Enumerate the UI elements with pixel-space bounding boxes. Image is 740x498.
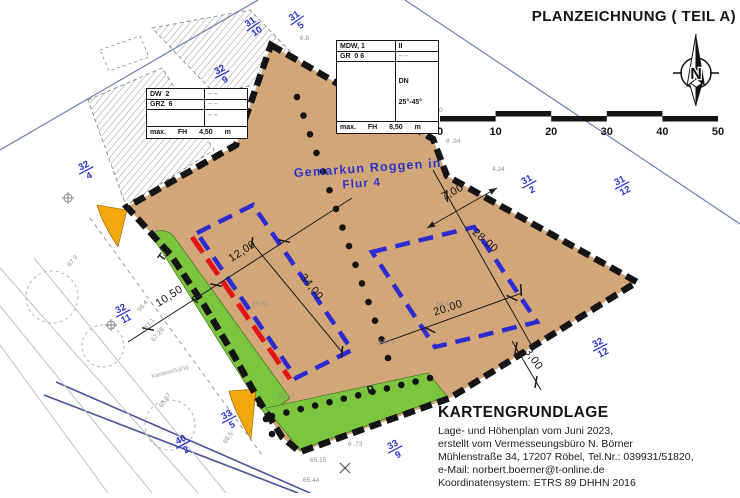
dimension-tick	[535, 376, 537, 388]
page-title: PLANZEICHNUNG ( TEIL A)	[500, 8, 736, 25]
cross-mark-icon	[340, 463, 350, 473]
spec-footer: max. FH 8,50 m	[337, 122, 438, 133]
parcel-denominator: 2	[181, 444, 191, 456]
dot-chain-point	[412, 378, 419, 385]
dot-chain-point	[384, 385, 391, 392]
elevation-label: 67.26	[150, 326, 166, 343]
parcel-denominator: 5	[296, 19, 307, 31]
dot-chain-point	[352, 262, 359, 269]
map-source-line: Mühlenstraße 34, 17207 Röbel, Tel.Nr.: 0…	[438, 451, 738, 464]
dot-chain-point	[297, 406, 304, 413]
spec-cell: DW 2	[147, 89, 204, 100]
parcel-denominator: 9	[393, 449, 403, 461]
dot-chain-point	[427, 375, 434, 382]
spec-cell: GR 0 6	[337, 52, 395, 63]
spec-table-right: MDW, 1 II GR 0 6 – – DN 25°-45° max. FH …	[336, 40, 439, 134]
spec-cell	[337, 62, 395, 122]
map-source-heading: KARTENGRUNDLAGE	[438, 404, 738, 422]
parcel-number-label: 3212	[588, 334, 613, 361]
scale-bar: 01020304050	[437, 111, 724, 138]
spec-table-left: DW 2 – – GRZ 6 – – – – max. FH 4,50 m	[146, 88, 248, 139]
north-arrow: N	[673, 34, 719, 106]
elevation-label: 64.46	[436, 301, 453, 308]
parcel-denominator: 4	[84, 170, 94, 183]
survey-point-icon	[62, 192, 74, 204]
elevation-label: 66.5	[222, 430, 235, 445]
spec-footer: max. FH 4,50 m	[147, 127, 247, 138]
map-source-line: e-Mail: norbert.boerner@t-online.de	[438, 464, 738, 477]
dot-chain-point	[283, 409, 290, 416]
dot-chain-point	[365, 299, 372, 306]
spec-cell	[147, 110, 204, 127]
parcel-number-label: 3112	[610, 172, 635, 199]
dot-chain-point	[372, 317, 379, 324]
scale-bar-segment	[440, 116, 496, 122]
dot-chain-point	[300, 112, 307, 119]
dot-chain-point	[269, 431, 276, 438]
elevation-label: 65.67	[158, 391, 173, 409]
yellow-wedge	[229, 389, 256, 439]
yellow-wedge	[97, 205, 127, 247]
dot-chain-point	[385, 355, 392, 362]
spec-cell: – –	[395, 52, 438, 63]
tree-crown	[26, 271, 78, 323]
elevation-label: 8 .73	[348, 441, 363, 448]
parcel-number-label: 339	[383, 436, 408, 463]
dot-chain-point	[326, 187, 333, 194]
dot-chain-point	[307, 131, 314, 138]
map-source-line: Lage- und Höhenplan vom Juni 2023,	[438, 425, 738, 438]
elevation-label: 8 .94	[446, 138, 461, 145]
scale-bar-segment	[496, 111, 552, 117]
street-edge-line	[44, 395, 298, 493]
dimension-label: 10,50	[154, 283, 186, 309]
dashed-outline-area	[100, 36, 149, 71]
elevation-label: 65.67	[278, 393, 295, 400]
dot-chain-point	[359, 280, 366, 287]
map-source-line: erstellt vom Vermesseungsbüro N. Börner	[438, 438, 738, 451]
spec-cell: II	[395, 41, 438, 52]
elevation-label: 65.15	[310, 457, 327, 464]
north-letter: N	[690, 66, 702, 83]
spec-cell-line: DN	[399, 78, 435, 85]
scale-tick-label: 30	[601, 126, 613, 138]
parcel-number-label: 312	[517, 171, 542, 198]
elevation-label: 4.24	[492, 166, 505, 173]
elevation-label: 66.4	[136, 299, 150, 313]
dot-chain-point	[313, 150, 320, 157]
spec-cell: – –	[204, 89, 247, 100]
spec-cell: MDW, 1	[337, 41, 395, 52]
elevation-label: 65.44	[303, 477, 320, 484]
scale-bar-segment	[662, 116, 718, 122]
scale-tick-label: 40	[656, 126, 668, 138]
spec-cell: DN 25°-45°	[395, 62, 438, 122]
dot-chain-point	[398, 382, 405, 389]
map-source-line: Koordinatensystem: ETRS 89 DHHN 2016	[438, 477, 738, 490]
dimension-tick	[521, 284, 522, 296]
parcel-denominator: 2	[527, 184, 537, 196]
scale-bar-segment	[551, 116, 607, 122]
parcel-denominator: 5	[227, 419, 237, 432]
elevation-label: 65.70	[252, 301, 269, 308]
scale-bar-segment	[607, 111, 663, 117]
spec-cell: – –	[204, 110, 247, 127]
elevation-label: 67.1	[143, 317, 157, 331]
scale-tick-label: 10	[489, 126, 501, 138]
scale-tick-label: 20	[545, 126, 557, 138]
parcel-number-label: 315	[285, 7, 311, 35]
dot-chain-point	[341, 395, 348, 402]
spec-cell: – –	[204, 100, 247, 111]
dot-chain-point	[312, 402, 319, 409]
scale-tick-label: 50	[712, 126, 724, 138]
parcel-number-label: 324	[74, 157, 99, 184]
dot-chain-point	[355, 392, 362, 399]
cadastre-line	[0, 306, 152, 493]
dimension-tick	[447, 190, 448, 202]
spec-cell-line: 25°-45°	[399, 99, 435, 106]
elevation-label: 67.9	[66, 254, 80, 268]
tree-note-label: Kastanie/0,6/16	[151, 365, 190, 380]
dot-chain-point	[326, 399, 333, 406]
dimension-label: 3,00	[522, 346, 545, 372]
dimension-arrow-icon	[489, 188, 497, 195]
map-source-block: KARTENGRUNDLAGE Lage- und Höhenplan vom …	[438, 404, 738, 490]
survey-point-icon	[105, 319, 117, 331]
elevation-label: 64.74	[378, 339, 395, 346]
dot-chain-point	[294, 94, 301, 101]
elevation-label: 6.8	[300, 35, 309, 42]
spec-cell: GRZ 6	[147, 100, 204, 111]
dot-chain-point	[339, 224, 346, 231]
dot-chain-point	[346, 243, 353, 250]
